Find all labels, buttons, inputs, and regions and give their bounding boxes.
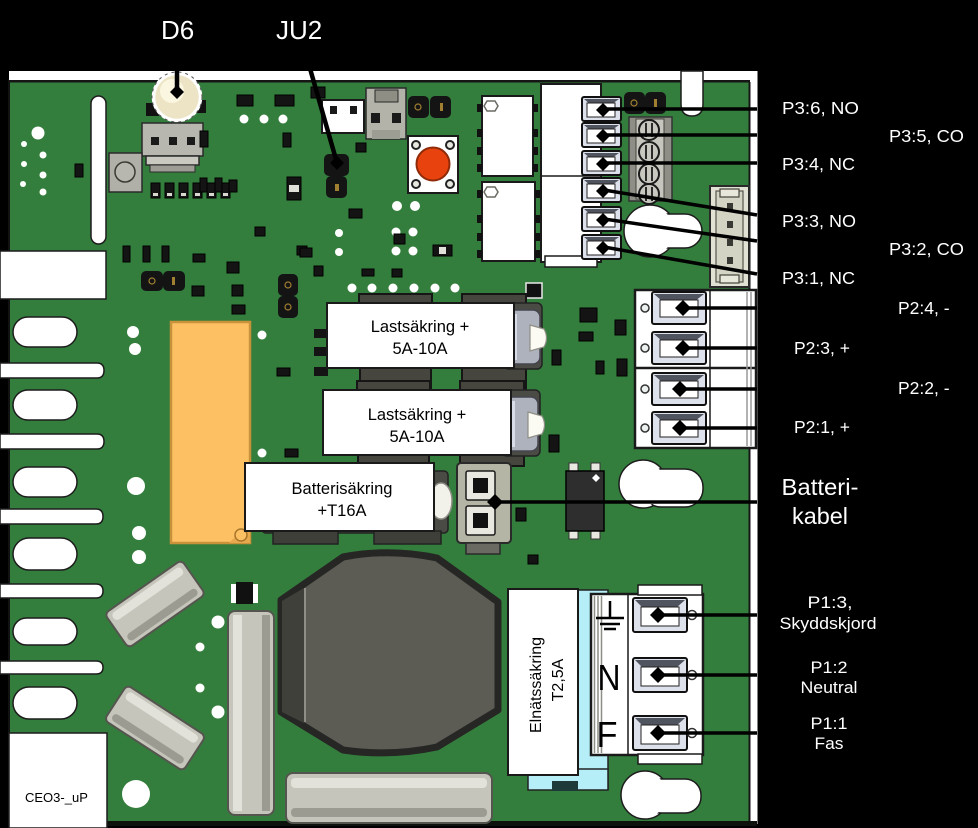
- svg-text:Batteri-: Batteri-: [782, 474, 859, 500]
- svg-text:5A-10A: 5A-10A: [389, 428, 444, 446]
- svg-text:P1:2: P1:2: [811, 659, 848, 677]
- svg-text:D6: D6: [161, 15, 194, 45]
- svg-text:P3:3, NO: P3:3, NO: [782, 211, 856, 231]
- svg-text:P1:3,: P1:3,: [808, 594, 853, 612]
- svg-text:Skyddskjord: Skyddskjord: [780, 615, 877, 633]
- svg-text:T2,5A: T2,5A: [550, 658, 567, 701]
- svg-text:P3:4, NC: P3:4, NC: [782, 154, 855, 174]
- svg-text:P3:1, NC: P3:1, NC: [782, 268, 855, 288]
- svg-text:P3:6, NO: P3:6, NO: [782, 98, 859, 118]
- svg-text:+T16A: +T16A: [317, 502, 366, 520]
- svg-text:5A-10A: 5A-10A: [392, 340, 447, 358]
- svg-text:P2:4, -: P2:4, -: [898, 298, 950, 318]
- svg-text:F: F: [597, 714, 618, 755]
- svg-text:JU2: JU2: [276, 15, 322, 45]
- svg-text:P3:5, CO: P3:5, CO: [889, 126, 964, 146]
- svg-text:Lastsäkring +: Lastsäkring +: [371, 318, 470, 336]
- svg-text:P2:2, -: P2:2, -: [898, 378, 950, 398]
- svg-text:N: N: [598, 657, 621, 698]
- svg-text:Neutral: Neutral: [801, 679, 858, 697]
- svg-text:P2:3, +: P2:3, +: [794, 338, 850, 358]
- svg-text:Batterisäkring: Batterisäkring: [292, 480, 393, 498]
- svg-text:CEO3-_uP: CEO3-_uP: [25, 790, 88, 805]
- svg-text:kabel: kabel: [792, 503, 848, 529]
- svg-text:Fas: Fas: [815, 735, 844, 753]
- svg-text:P3:2, CO: P3:2, CO: [889, 239, 964, 259]
- svg-text:P2:1, +: P2:1, +: [794, 417, 850, 437]
- svg-text:Lastsäkring +: Lastsäkring +: [368, 406, 467, 424]
- svg-text:P1:1: P1:1: [811, 715, 848, 733]
- svg-text:Elnätssäkring: Elnätssäkring: [528, 637, 545, 733]
